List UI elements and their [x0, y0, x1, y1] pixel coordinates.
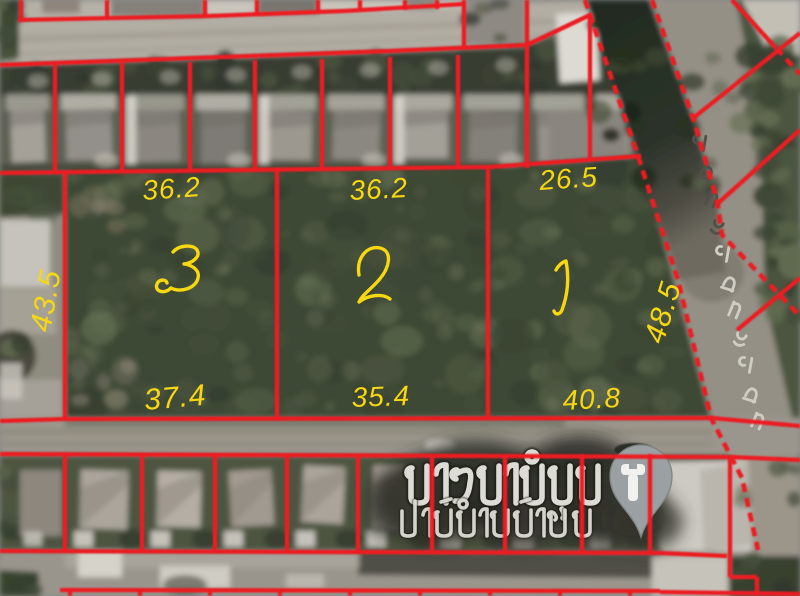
svg-text:36.2: 36.2: [141, 171, 202, 206]
svg-text:26.5: 26.5: [537, 161, 599, 196]
svg-text:35.4: 35.4: [351, 380, 411, 413]
svg-text:37.4: 37.4: [143, 379, 208, 417]
svg-text:40.8: 40.8: [562, 382, 622, 416]
svg-text:36.2: 36.2: [349, 172, 409, 206]
